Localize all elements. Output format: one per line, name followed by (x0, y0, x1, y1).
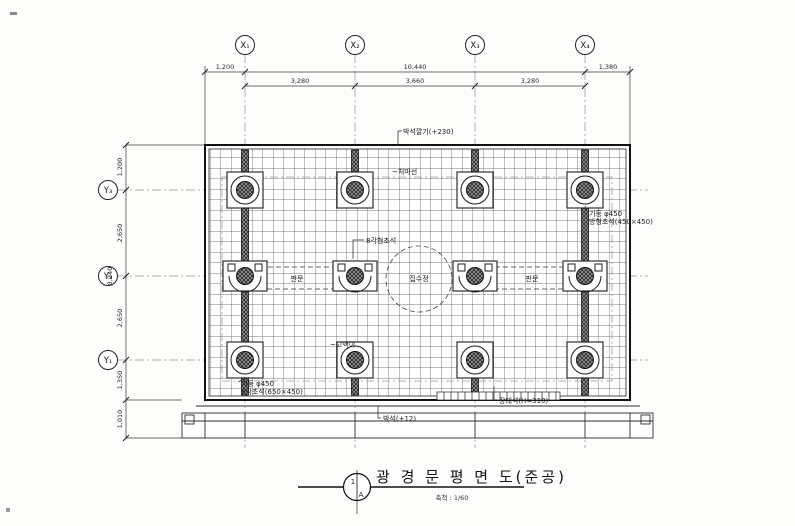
dim-top-span1: 3,280 (291, 77, 310, 85)
column-door-pivot (453, 261, 497, 292)
annotation-door-left: 판문 (291, 274, 304, 283)
dim-left-span2: 2,650 (116, 309, 124, 328)
title-block: 1 A 광 경 문 평 면 도(준공) 축척 : 1/60 (298, 468, 567, 514)
column-base (567, 172, 603, 208)
drawing-title: 광 경 문 평 면 도(준공) (376, 468, 567, 486)
annotation-column-right-1: 기둥 φ450 (589, 209, 622, 218)
column-base (227, 342, 263, 378)
column-door-pivot (563, 261, 607, 292)
annotation-eaves: ~처마선 (392, 167, 417, 176)
annotation-paving-top: 박석깔기(+230) (403, 127, 454, 136)
annotation-column-bl-1: 기둥 φ450 (241, 379, 274, 388)
annotation-center-circle: 집수정 (409, 274, 428, 283)
dim-left-top-offset: 1,200 (116, 158, 124, 177)
annotation-column-right-2: 방형초석(450×450) (589, 217, 653, 226)
scan-artifact (6, 508, 10, 512)
steps-apron (182, 406, 653, 438)
annotation-gomaegi: ~고맥이 (330, 340, 355, 349)
annotation-door-right: 판문 (526, 274, 539, 283)
annotation-column-bl-2: 8각초석(650×450) (241, 387, 303, 396)
grid-label-x1: X₁ (240, 41, 249, 51)
dim-top-overall: 10,440 (404, 63, 427, 71)
column-base (457, 172, 493, 208)
column-base (567, 342, 603, 378)
dim-left-bottom-offset: 1,350 (116, 371, 124, 390)
title-marker-top: 1 (351, 478, 355, 486)
grid-label-x4: X₄ (580, 41, 590, 51)
dim-top-right-offset: 1,380 (599, 63, 618, 71)
grid-label-x2: X₂ (350, 41, 359, 51)
scan-artifact (10, 12, 17, 15)
dim-left-overall: 8,240 (106, 267, 114, 286)
column-door-pivot (333, 261, 377, 292)
drawing-sheet: X₁ X₂ X₃ X₄ Y₃ Y₂ Y₁ 1,200 10,440 1,380 … (0, 0, 795, 526)
annotation-step-stone: 장대석(H=310) (499, 396, 549, 405)
column-base (457, 342, 493, 378)
grid-label-y1: Y₁ (103, 356, 113, 366)
column-base (337, 172, 373, 208)
dim-left-span1: 2,650 (116, 224, 124, 243)
title-marker-bottom: A (359, 491, 364, 499)
drawing-scale: 축척 : 1/60 (436, 493, 469, 502)
dim-top-span2: 3,660 (406, 77, 425, 85)
annotation-octagonal-base: 8각형초석 (366, 236, 396, 245)
column-door-pivot (223, 261, 267, 292)
grid-label-x3: X₃ (470, 41, 479, 51)
plan-drawing: X₁ X₂ X₃ X₄ Y₃ Y₂ Y₁ 1,200 10,440 1,380 … (0, 0, 795, 526)
annotation-paving-bottom: 박석(+12) (383, 414, 416, 423)
dim-top-span3: 3,280 (521, 77, 540, 85)
column-base (227, 172, 263, 208)
grid-label-y3: Y₃ (103, 186, 113, 196)
dim-left-step: 1,010 (116, 410, 124, 429)
dim-top-left-offset: 1,200 (216, 63, 235, 71)
